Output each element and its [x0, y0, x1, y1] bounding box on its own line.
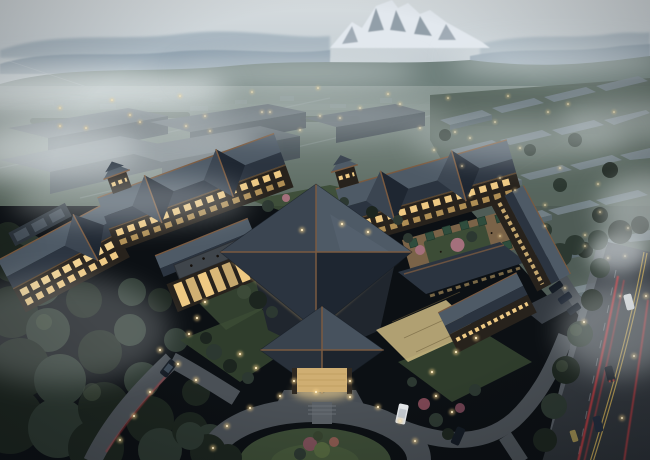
vignette-overlay — [0, 0, 650, 460]
screenshot-canvas — [0, 0, 650, 460]
resort-aerial-rendering — [0, 0, 650, 460]
